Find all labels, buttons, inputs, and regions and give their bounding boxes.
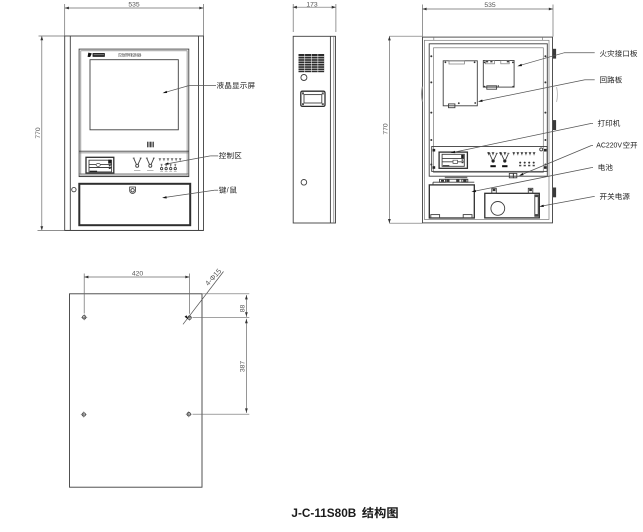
svg-text:88: 88 [240,305,247,313]
svg-text:770: 770 [35,127,42,139]
svg-text:173: 173 [306,2,318,9]
svg-text:387: 387 [240,361,247,373]
svg-text:535: 535 [484,2,496,9]
svg-text:420: 420 [132,271,144,278]
svg-text:AC220V: AC220V [596,143,622,150]
svg-text:/: / [227,186,229,195]
svg-text:J-C-11S80B: J-C-11S80B [291,506,356,520]
svg-text:770: 770 [383,123,390,135]
svg-text:535: 535 [128,2,140,9]
